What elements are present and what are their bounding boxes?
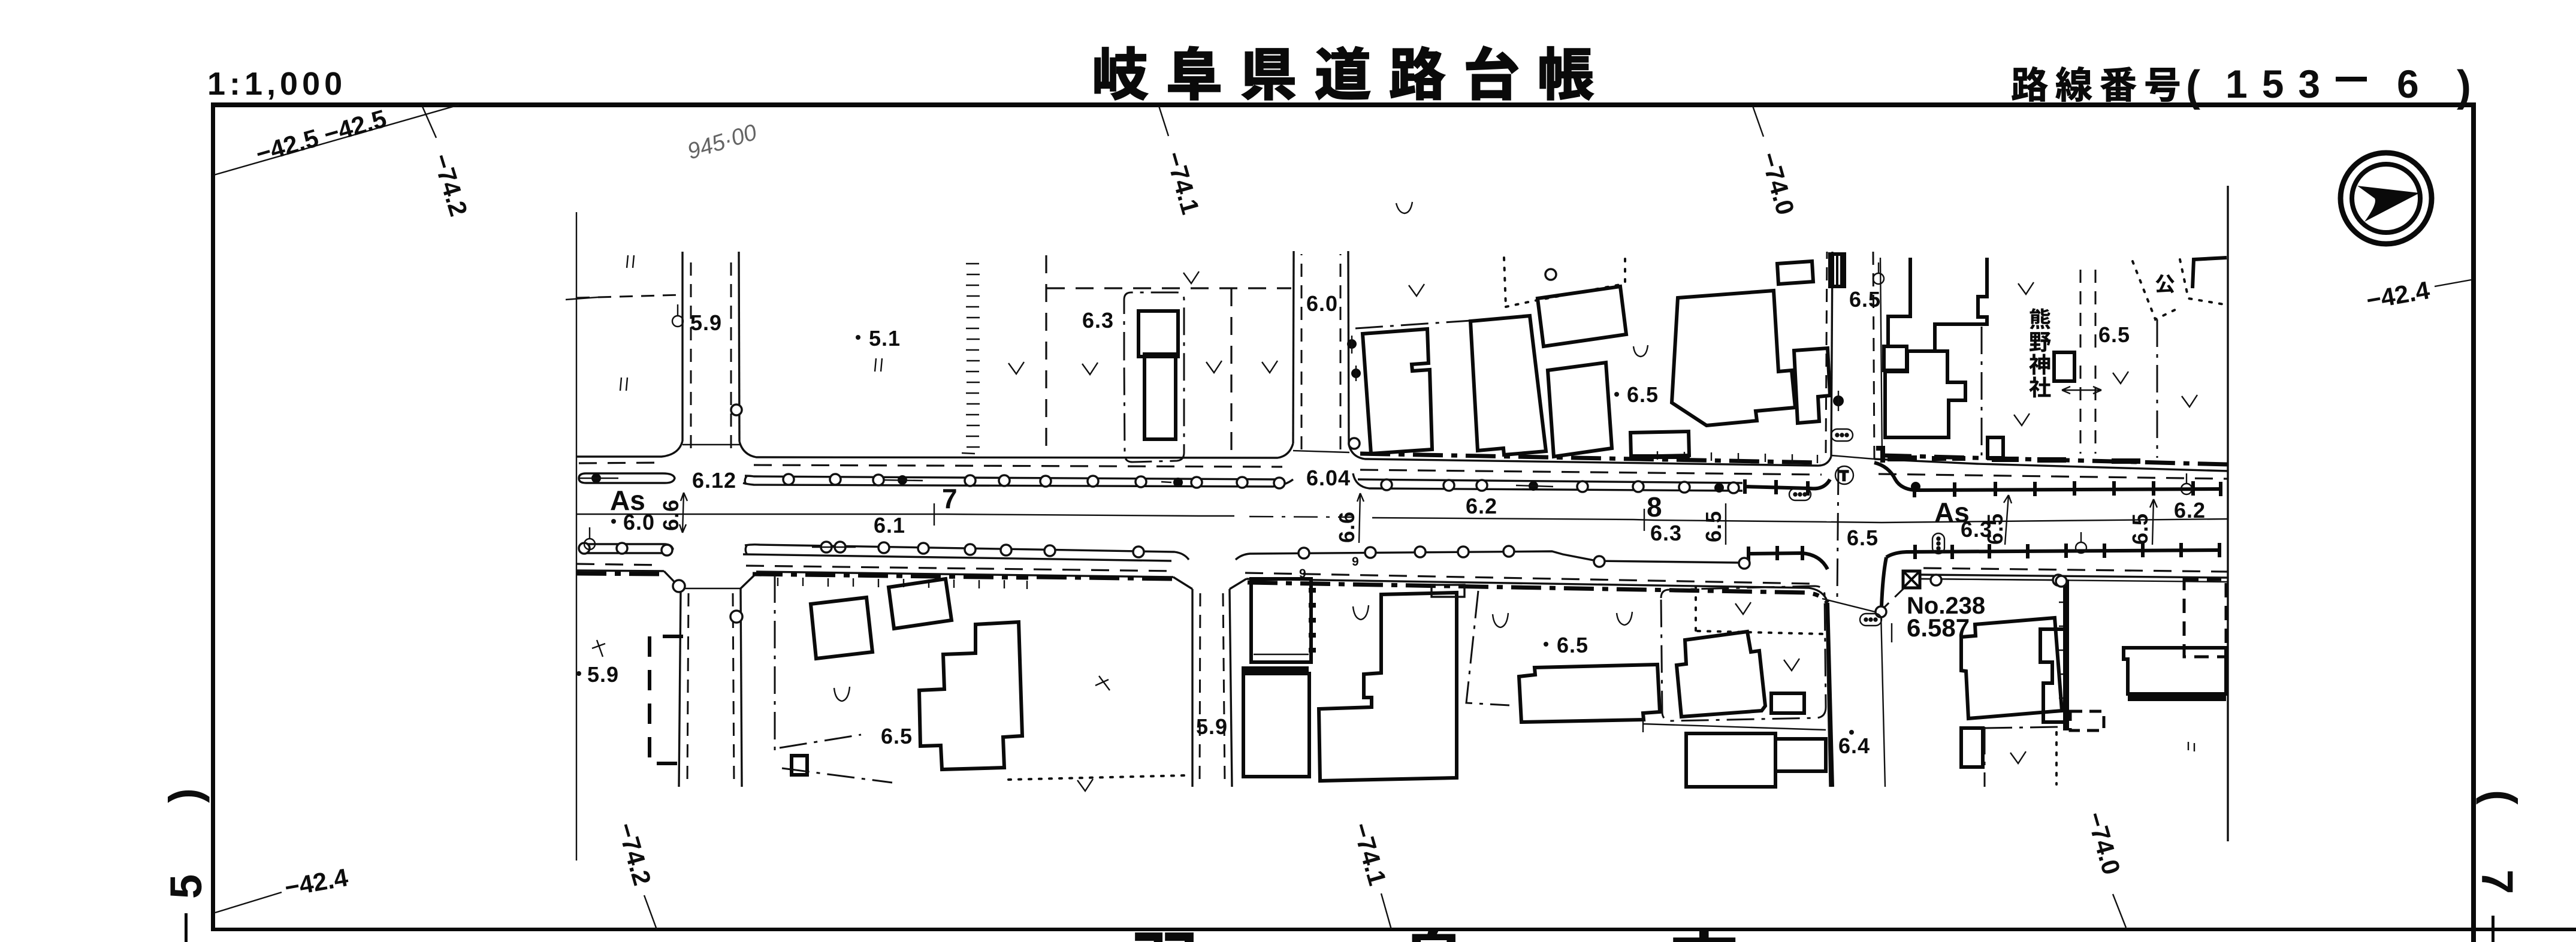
svg-text:5.9: 5.9 <box>1196 714 1228 739</box>
svg-text:9: 9 <box>1299 567 1306 581</box>
svg-text:6.2: 6.2 <box>2174 498 2206 523</box>
svg-text:6.2: 6.2 <box>1466 494 1497 518</box>
svg-text:6.0: 6.0 <box>623 510 655 535</box>
svg-text:6.5: 6.5 <box>1557 633 1589 657</box>
svg-text:T: T <box>1840 468 1849 484</box>
svg-text:8: 8 <box>1647 491 1662 523</box>
svg-text:6.04: 6.04 <box>1306 466 1351 490</box>
svg-text:6.12: 6.12 <box>692 468 736 493</box>
svg-text:6.4: 6.4 <box>1838 733 1870 758</box>
svg-text:6.5: 6.5 <box>881 724 913 748</box>
svg-text:6.5: 6.5 <box>1847 526 1879 550</box>
svg-text:5.1: 5.1 <box>869 326 901 351</box>
svg-text:6.587: 6.587 <box>1907 614 1970 642</box>
svg-text:7: 7 <box>2472 869 2522 894</box>
svg-text:(: ( <box>2476 790 2526 805</box>
svg-text:6.6: 6.6 <box>1334 511 1359 543</box>
svg-text:6.5: 6.5 <box>2128 513 2152 545</box>
svg-text:): ) <box>2457 62 2471 110</box>
svg-text:(: ( <box>2186 62 2200 110</box>
svg-text:5.9: 5.9 <box>690 310 722 335</box>
svg-text:5: 5 <box>161 874 211 899</box>
svg-text:5.9: 5.9 <box>587 662 619 687</box>
svg-text:7: 7 <box>942 483 958 514</box>
svg-text:6.5: 6.5 <box>1701 511 1726 542</box>
svg-text:9: 9 <box>1352 555 1359 569</box>
svg-text:153: 153 <box>2225 62 2335 106</box>
svg-text:6.0: 6.0 <box>1306 291 1338 316</box>
svg-text:6.1: 6.1 <box>874 513 905 538</box>
svg-text:6.3: 6.3 <box>1082 308 1114 333</box>
svg-text:6: 6 <box>2397 62 2419 106</box>
svg-text:6.5: 6.5 <box>1627 382 1659 407</box>
svg-text:6.5: 6.5 <box>1983 513 2007 545</box>
svg-text:): ) <box>160 788 210 803</box>
svg-text:6.5: 6.5 <box>1849 287 1881 312</box>
svg-text:6.5: 6.5 <box>2098 322 2130 347</box>
svg-text:6.3: 6.3 <box>1650 521 1682 545</box>
svg-text:1:1,000: 1:1,000 <box>207 66 346 102</box>
